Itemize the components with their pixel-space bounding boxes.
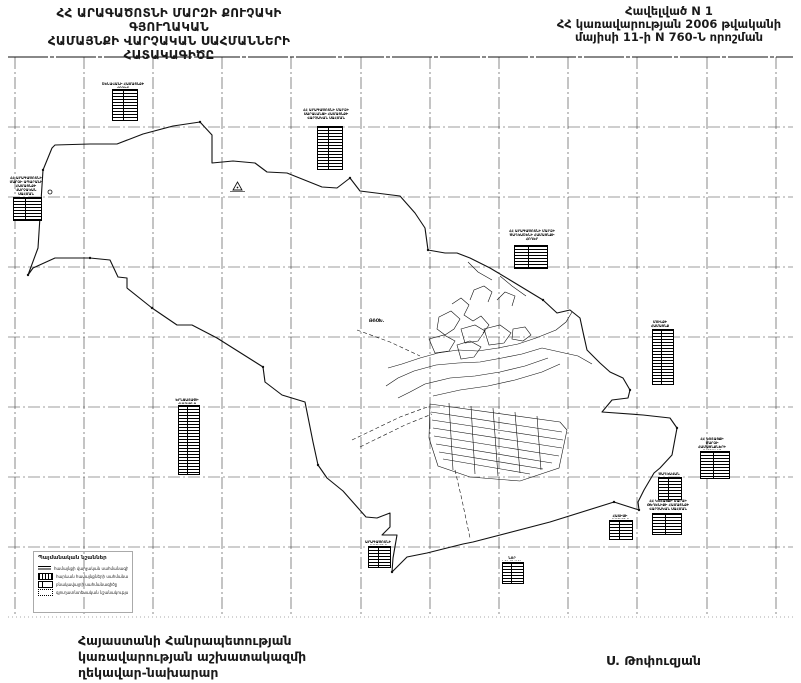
stamp-table [652, 513, 682, 535]
stamp-caption: ԾԱՂԿԱՎԱՆ [656, 472, 682, 476]
stamp-caption: ՀԱՏԻՍԻ ՀԱՄԱՅՆՔ [606, 514, 634, 519]
stamp-table [700, 451, 730, 479]
stamp-caption: ՆՈՐ ԵԴԵՍԻԱՅԻ ՀՈՂԵՐ [498, 556, 526, 561]
stamp-table [13, 197, 42, 221]
stamp-table [514, 245, 548, 269]
stamp-table [317, 126, 343, 170]
stamp-caption: ՀՀ ԱՐԱԳԱԾՈՏՆԻ ՄԱՐԶԻ ԱՊԱՐԱՆԻ ՀԱՄԱՅՆՔԻ ՎԱՐ… [8, 176, 44, 196]
annex-title: Հավելված N 1 ՀՀ կառավարության 2006 թվակա… [540, 5, 798, 44]
stamp-caption: ՄՈՒԼՔԻ ՀԱՄԱՅՆՔ [646, 320, 674, 328]
signatory-title: Հայաստանի Հանրապետության կառավարության ա… [78, 633, 306, 681]
stamp-caption: ՀՀ ԿՈՏԱՅՔԻ ՄԱՐԶԻ ԹԵՂԵՆԻՔԻ ՀԱՄԱՅՆՔԻ ՎԱՐՉԱ… [644, 499, 692, 512]
stamp-table [652, 329, 674, 385]
signatory-title-line3: ղեկավար-նախարար [78, 665, 306, 681]
legend-title: Պայմանական նշաններ [38, 555, 128, 561]
stamp-caption: ՇԵՆԱՎԱՆԻ ՀԱՄԱՅՆՔԻ ՀՈՂԵՐ [100, 82, 146, 88]
annex-title-line3: մայիսի 11-ի N 760-Ն որոշման [540, 31, 798, 44]
stamp-caption: ՀՀ ԿՈՏԱՅՔԻ ՄԱՐԶԻ ՀԱՄԱՅՆՔՆԵՐԻ ՎԱՐՉԱԿԱՆ ՍԱ… [694, 437, 730, 450]
boundary-turn-points [27, 121, 678, 573]
signatory-title-line2: կառավարության աշխատակազմի [78, 649, 306, 665]
signatory-name: Ս. Թոփուզյան [606, 653, 701, 668]
legend-item: համայնքի վարչական սահմանագիծը [38, 564, 128, 572]
legend-item-label: գյուղատնտեսական նշանակության հողեր [56, 590, 128, 595]
neighbor-boundary-symbol-icon [38, 573, 53, 580]
stamp-caption: ԱՐԱԳԱԾՈՏՆԻ ՀԱՄԱՅՆՔ [364, 540, 392, 545]
triangulation-icon [230, 182, 245, 192]
stamp-caption: ՀՀ ԱՐԱԳԱԾՈՏՆԻ ՄԱՐԶԻ ՍԱՐԱԼԱՆՋԻ ՀԱՄԱՅՆՔԻ Վ… [300, 108, 352, 125]
stamp-table [609, 520, 633, 540]
settlement-symbol-icon [38, 581, 53, 588]
legend-item: հարևան համայնքների սահմանագծերը [38, 572, 128, 580]
legend-item: գյուղատնտեսական նշանակության հողեր [38, 588, 128, 596]
stamp-table [502, 562, 524, 584]
community-boundary [28, 122, 677, 572]
stamp-table [368, 546, 391, 568]
agricultural-symbol-icon [38, 589, 53, 596]
page-title-line1: ՀՀ ԱՐԱԳԱԾՈՏՆԻ ՄԱՐԶԻ ՔՈՒՉԱԿԻ ԳՅՈՒՂԱԿԱՆ [18, 6, 320, 34]
stamp-table [658, 477, 682, 500]
page-title-line2: ՀԱՄԱՅՆՔԻ ՎԱՐՉԱԿԱՆ ՍԱՀՄԱՆՆԵՐԻ [18, 34, 320, 48]
stamp-caption: ԵՐՆՋԱՏԱՓԻ ՀԱՄԱՅՆՔ [174, 398, 200, 404]
page-title-line3: ՀԱՏԱԿԱԳԻԾԸ [18, 48, 320, 62]
boundary-symbol-icon [38, 566, 51, 571]
place-label: ԹՌՕԽ. [369, 319, 384, 323]
legend-item: բնակավայրի սահմանագիծը [38, 580, 128, 588]
legend-item-label: բնակավայրի սահմանագիծը [56, 582, 117, 587]
page-title: ՀՀ ԱՐԱԳԱԾՈՏՆԻ ՄԱՐԶԻ ՔՈՒՉԱԿԻ ԳՅՈՒՂԱԿԱՆ ՀԱ… [18, 6, 320, 62]
signatory-title-line1: Հայաստանի Հանրապետության [78, 633, 306, 649]
legend-box: Պայմանական նշաններ համայնքի վարչական սահ… [33, 551, 133, 613]
legend-item-label: համայնքի վարչական սահմանագիծը [54, 566, 128, 571]
stamp-table [178, 405, 200, 475]
legend-item-label: հարևան համայնքների սահմանագծերը [56, 574, 128, 579]
stamp-table [112, 89, 138, 121]
scanned-map-page: ՀՀ ԱՐԱԳԱԾՈՏՆԻ ՄԱՐԶԻ ՔՈՒՉԱԿԻ ԳՅՈՒՂԱԿԱՆ ՀԱ… [0, 0, 801, 683]
stamp-caption: ՀՀ ԱՐԱԳԱԾՈՏՆԻ ՄԱՐԶԻ ԾԱՂԿԱՇԵՆԻ ՀԱՄԱՅՆՔԻ Հ… [506, 229, 558, 243]
settlement-parcels [386, 262, 592, 481]
